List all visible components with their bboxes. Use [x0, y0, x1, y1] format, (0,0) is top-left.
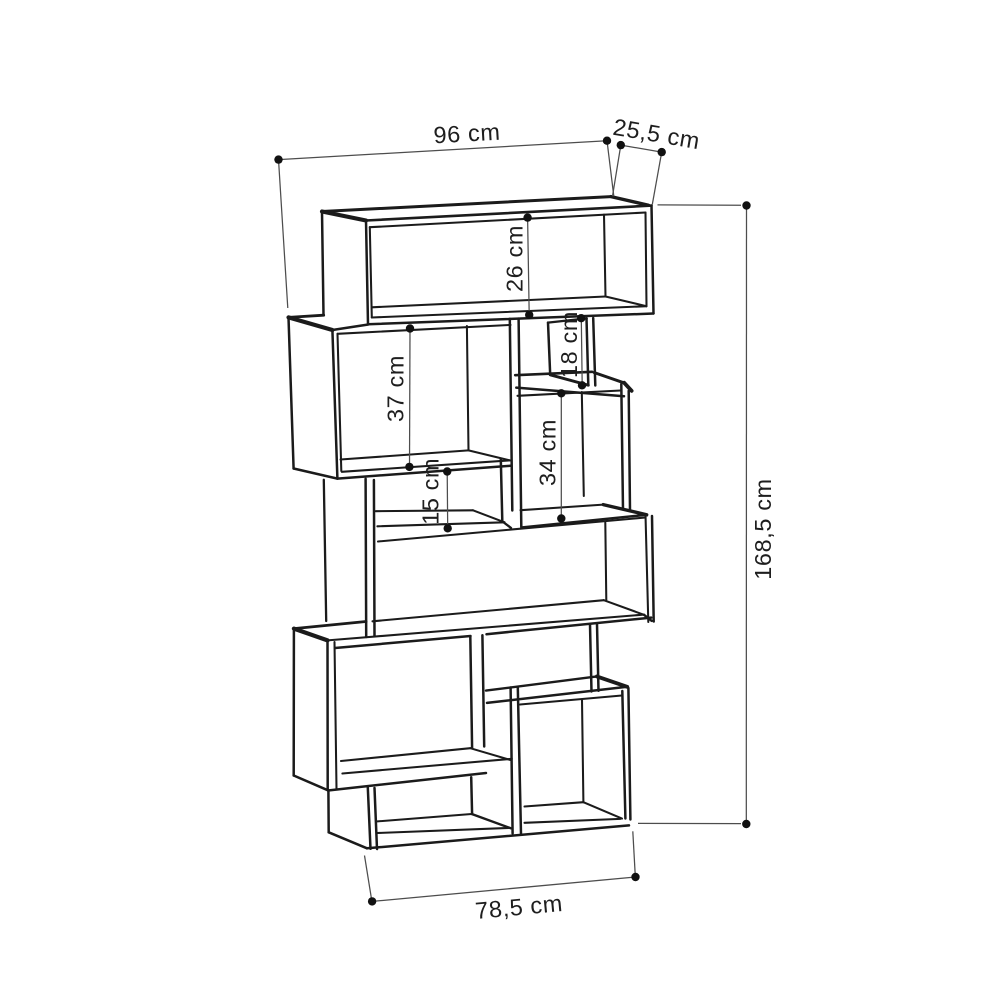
svg-text:37 cm: 37 cm	[383, 355, 409, 422]
svg-text:96 cm: 96 cm	[433, 119, 501, 149]
svg-text:168,5 cm: 168,5 cm	[750, 478, 776, 579]
svg-text:15 cm: 15 cm	[418, 458, 444, 525]
svg-text:26 cm: 26 cm	[502, 225, 528, 292]
svg-text:25,5 cm: 25,5 cm	[611, 114, 702, 154]
svg-text:34 cm: 34 cm	[535, 419, 561, 486]
svg-text:18 cm: 18 cm	[556, 311, 582, 378]
svg-text:78,5 cm: 78,5 cm	[474, 890, 564, 924]
